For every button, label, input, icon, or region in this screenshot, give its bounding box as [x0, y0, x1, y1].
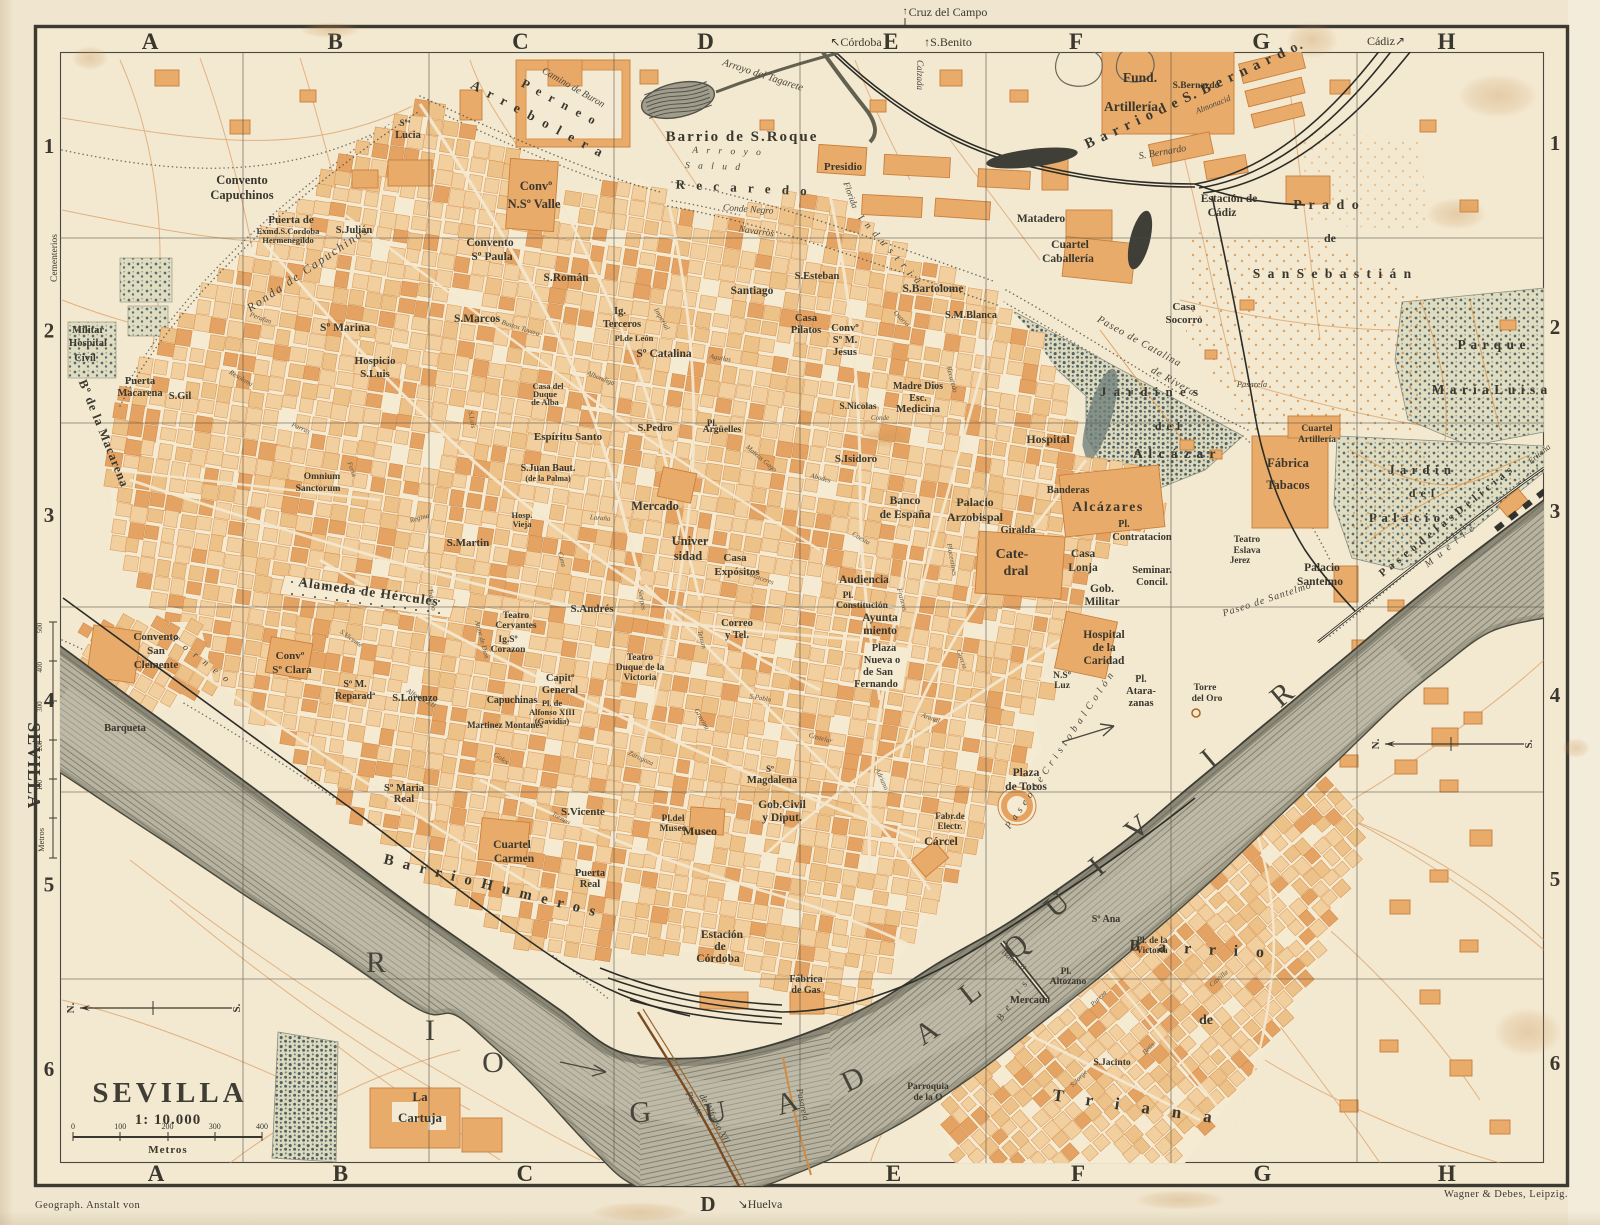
svg-text:de: de [1324, 231, 1337, 245]
svg-text:Sºª: Sºª [400, 118, 411, 128]
svg-text:N.Sº: N.Sº [1053, 671, 1071, 681]
svg-text:D: D [697, 29, 714, 54]
svg-text:General: General [542, 685, 578, 696]
svg-text:S.Esteban: S.Esteban [795, 271, 840, 282]
svg-text:S.Jacinto: S.Jacinto [1093, 1058, 1130, 1068]
svg-text:y Diput.: y Diput. [762, 812, 802, 824]
svg-text:S.Isidoro: S.Isidoro [835, 453, 878, 465]
svg-text:Capuchinos: Capuchinos [210, 188, 273, 202]
svg-text:2: 2 [1550, 315, 1561, 339]
svg-text:Macarena: Macarena [117, 388, 163, 399]
svg-text:Giralda: Giralda [1000, 525, 1036, 536]
svg-text:de: de [714, 941, 726, 953]
svg-text:Sanctorum: Sanctorum [296, 484, 341, 494]
svg-text:N.: N. [1370, 738, 1382, 749]
svg-text:S.Vicente: S.Vicente [561, 806, 605, 818]
svg-text:de la: de la [1092, 642, 1116, 654]
svg-text:Sº Catalina: Sº Catalina [636, 348, 691, 360]
svg-text:↑: ↑ [903, 6, 908, 17]
svg-text:Arzobispal: Arzobispal [947, 510, 1004, 524]
svg-text:Vieja: Vieja [512, 519, 532, 529]
svg-text:Banco: Banco [890, 495, 921, 507]
svg-text:Metros: Metros [36, 828, 46, 852]
svg-text:S.Pedro: S.Pedro [637, 423, 672, 434]
svg-text:S.Marcos: S.Marcos [454, 313, 501, 325]
svg-text:S.M.Blanca: S.M.Blanca [945, 310, 998, 321]
svg-text:Calzada: Calzada [915, 60, 925, 91]
svg-text:5: 5 [44, 872, 55, 896]
svg-text:S.Román: S.Román [543, 272, 589, 284]
svg-text:200: 200 [36, 740, 44, 751]
svg-text:400: 400 [256, 1122, 268, 1131]
svg-text:d e l: d e l [1155, 419, 1181, 433]
svg-text:S.Andrés: S.Andrés [570, 603, 614, 615]
svg-text:S.Nicolas: S.Nicolas [839, 402, 877, 412]
svg-text:Artillería: Artillería [1298, 435, 1336, 445]
svg-text:Casa: Casa [723, 552, 747, 564]
svg-text:E: E [883, 29, 898, 54]
svg-text:Cuartel: Cuartel [493, 839, 531, 851]
svg-text:Capitª: Capitª [546, 673, 575, 684]
svg-text:dral: dral [1004, 564, 1029, 579]
svg-text:Pasarela: Pasarela [1236, 379, 1267, 389]
svg-text:de: de [1199, 1013, 1213, 1028]
svg-text:Seminar.: Seminar. [1132, 565, 1172, 576]
svg-text:Medicina: Medicina [896, 403, 940, 415]
svg-text:Pl.: Pl. [1118, 519, 1130, 530]
svg-text:Fund.: Fund. [1123, 70, 1157, 85]
svg-text:Casa: Casa [1172, 301, 1196, 313]
svg-text:Victoria: Victoria [624, 673, 657, 683]
svg-text:N.Sº Valle: N.Sº Valle [508, 197, 561, 211]
svg-text:300: 300 [36, 701, 44, 712]
svg-text:↑S.Benito: ↑S.Benito [924, 35, 972, 49]
svg-text:Univer: Univer [672, 534, 709, 548]
svg-text:2: 2 [44, 319, 55, 343]
svg-text:Plaza: Plaza [872, 643, 897, 654]
svg-text:1: 1 [1550, 131, 1561, 155]
svg-text:Fabr.de: Fabr.de [935, 811, 964, 821]
svg-text:Parroquia: Parroquia [907, 1082, 949, 1092]
svg-text:Matadero: Matadero [1017, 213, 1066, 225]
svg-text:Sº Paula: Sº Paula [471, 251, 512, 263]
svg-text:Teatro: Teatro [627, 653, 654, 663]
svg-text:F: F [1071, 1161, 1085, 1186]
svg-text:Hospital: Hospital [69, 338, 107, 349]
svg-text:Socorro: Socorro [1165, 314, 1203, 326]
svg-text:Real: Real [394, 794, 414, 805]
svg-text:de España: de España [880, 509, 931, 521]
svg-text:S.Martin: S.Martin [447, 537, 489, 549]
svg-text:Real: Real [580, 879, 600, 890]
svg-text:P a r q u e: P a r q u e [1458, 337, 1527, 352]
svg-text:S.: S. [1523, 739, 1535, 748]
svg-text:Sº M.: Sº M. [343, 679, 367, 690]
svg-text:Caballería: Caballería [1042, 253, 1094, 265]
svg-text:zanas: zanas [1128, 698, 1153, 709]
svg-text:Geograph. Anstalt von: Geograph. Anstalt von [35, 1200, 141, 1211]
svg-text:Cate-: Cate- [996, 547, 1029, 562]
svg-text:Pl.: Pl. [1061, 967, 1072, 977]
svg-text:Atara-: Atara- [1126, 686, 1156, 697]
svg-text:H: H [1438, 1161, 1456, 1186]
svg-text:Banderas: Banderas [1047, 485, 1090, 496]
svg-text:San: San [147, 645, 165, 657]
svg-text:P a l a c i o: P a l a c i o [1369, 510, 1441, 525]
svg-text:Fernando: Fernando [854, 679, 898, 690]
svg-text:S a l u d: S a l u d [685, 161, 743, 173]
svg-text:Cárcel: Cárcel [924, 834, 958, 848]
svg-text:Sº Maria: Sº Maria [384, 783, 425, 794]
svg-text:Reparadª: Reparadª [335, 691, 375, 702]
svg-text:Lonja: Lonja [1068, 562, 1098, 574]
svg-text:N.: N. [65, 1002, 77, 1013]
svg-text:A: A [142, 29, 159, 54]
svg-text:(de la Palma): (de la Palma) [525, 474, 571, 483]
svg-text:Puerta: Puerta [125, 376, 156, 387]
svg-text:500: 500 [36, 622, 44, 633]
svg-text:Presidio: Presidio [824, 161, 863, 173]
svg-text:Convº: Convº [276, 650, 305, 662]
svg-text:H: H [1437, 29, 1455, 54]
svg-text:O: O [482, 1046, 504, 1079]
svg-text:Madre Dios: Madre Dios [893, 381, 943, 392]
svg-text:Torre: Torre [1194, 683, 1217, 693]
svg-text:Altozano: Altozano [1050, 977, 1087, 987]
svg-text:Correo: Correo [721, 618, 753, 629]
svg-text:del Oro: del Oro [1192, 694, 1223, 704]
svg-text:R: R [366, 946, 386, 979]
svg-text:1: 1 [44, 134, 55, 158]
svg-text:Palacio: Palacio [956, 495, 993, 509]
svg-text:G: G [628, 1095, 652, 1129]
svg-text:Omnium: Omnium [304, 472, 341, 482]
svg-text:Hospital: Hospital [1026, 432, 1070, 446]
svg-text:Contratacion: Contratacion [1112, 532, 1172, 543]
svg-text:400: 400 [36, 662, 44, 673]
svg-text:Casa: Casa [795, 313, 818, 324]
svg-text:Militar: Militar [1084, 596, 1119, 608]
svg-text:Ig.Sº: Ig.Sº [498, 635, 517, 645]
svg-text:Hermenegildo: Hermenegildo [262, 235, 313, 245]
svg-text:0: 0 [71, 1122, 75, 1131]
svg-text:A: A [148, 1161, 165, 1186]
svg-text:F: F [1069, 29, 1083, 54]
svg-text:La: La [412, 1089, 428, 1104]
svg-text:Carmen: Carmen [494, 853, 535, 865]
svg-text:Palacio: Palacio [1304, 562, 1340, 574]
svg-text:de Gas: de Gas [791, 985, 820, 996]
svg-text:G: G [1253, 1161, 1271, 1186]
svg-text:Fábrica: Fábrica [1267, 456, 1309, 470]
svg-text:Argüelles: Argüelles [703, 425, 742, 435]
svg-text:Cádiz: Cádiz [1208, 207, 1237, 219]
svg-text:Luz: Luz [1054, 681, 1071, 691]
svg-text:Hospicio: Hospicio [355, 355, 396, 367]
svg-text:Sº: Sº [766, 764, 774, 774]
svg-text:Barrio de S.Roque: Barrio de S.Roque [666, 129, 819, 145]
svg-text:Teatro: Teatro [503, 611, 530, 621]
svg-text:Corazon: Corazon [491, 645, 527, 655]
svg-text:Cruz del Campo: Cruz del Campo [909, 5, 988, 19]
svg-text:Sº Marina: Sº Marina [320, 322, 370, 334]
svg-text:Córdoba: Córdoba [696, 953, 740, 965]
svg-text:S.Luis: S.Luis [360, 368, 390, 380]
svg-text:Santiago: Santiago [731, 285, 774, 297]
svg-text:↘Huelva: ↘Huelva [738, 1197, 783, 1211]
svg-text:S.: S. [231, 1003, 243, 1012]
svg-text:Pilatos: Pilatos [791, 325, 821, 336]
svg-text:Sº Clara: Sº Clara [272, 664, 312, 676]
svg-text:d e l: d e l [1409, 486, 1435, 500]
svg-text:Hospital: Hospital [1083, 629, 1125, 641]
svg-text:G: G [1252, 29, 1270, 54]
svg-text:Pl.de León: Pl.de León [615, 333, 654, 343]
svg-text:Pl.: Pl. [843, 591, 854, 601]
svg-text:6: 6 [1550, 1051, 1561, 1075]
svg-text:Puerta: Puerta [575, 868, 606, 879]
svg-text:miento: miento [863, 625, 897, 637]
svg-text:sidad: sidad [674, 549, 703, 563]
svg-text:E: E [886, 1161, 901, 1186]
svg-text:Cuartel: Cuartel [1051, 239, 1089, 251]
svg-text:de San: de San [863, 667, 893, 678]
svg-text:Nueva o: Nueva o [864, 655, 900, 666]
svg-text:B: B [333, 1161, 348, 1186]
svg-text:Barqueta: Barqueta [104, 723, 147, 734]
svg-text:Lucia: Lucia [395, 130, 421, 141]
svg-text:C: C [512, 29, 529, 54]
svg-text:Jesus: Jesus [833, 347, 857, 358]
svg-text:Tabacos: Tabacos [1266, 478, 1309, 492]
svg-text:S.Bartolome: S.Bartolome [902, 283, 963, 295]
svg-text:I: I [425, 1014, 435, 1047]
svg-text:Alcázares: Alcázares [1072, 500, 1144, 515]
svg-text:Constitución: Constitución [836, 601, 888, 611]
svg-text:Cervantes: Cervantes [495, 621, 536, 631]
svg-text:Conde: Conde [871, 414, 889, 422]
svg-text:Museo: Museo [683, 824, 717, 838]
svg-text:Convº: Convº [520, 179, 553, 193]
svg-text:5: 5 [1550, 867, 1561, 891]
svg-text:100: 100 [114, 1122, 126, 1131]
svg-text:Concil.: Concil. [1136, 577, 1168, 588]
svg-text:Gob.Civil: Gob.Civil [758, 799, 806, 811]
svg-text:de Alba: de Alba [531, 397, 559, 407]
svg-text:Audiencia: Audiencia [839, 574, 889, 586]
svg-text:4: 4 [1550, 683, 1561, 707]
svg-text:Cementerios: Cementerios [50, 234, 60, 282]
svg-text:Wagner & Debes, Leipzig.: Wagner & Debes, Leipzig. [1444, 1189, 1568, 1200]
svg-text:300: 300 [209, 1122, 221, 1131]
svg-text:Cádiz↗: Cádiz↗ [1367, 34, 1405, 48]
svg-text:A l c á z a r: A l c á z a r [1133, 446, 1217, 461]
svg-text:100: 100 [36, 779, 44, 790]
svg-text:Pl.del: Pl.del [662, 814, 685, 824]
svg-text:SEVILLA: SEVILLA [92, 1077, 247, 1109]
svg-text:Terceros: Terceros [603, 319, 641, 330]
svg-text:Capuchinas: Capuchinas [487, 695, 538, 706]
svg-text:SEVILLA: SEVILLA [24, 722, 44, 809]
svg-text:Estación: Estación [701, 929, 744, 941]
svg-text:3: 3 [1550, 499, 1561, 523]
svg-text:Mercado: Mercado [631, 499, 679, 513]
svg-text:P r a d o: P r a d o [1293, 198, 1361, 213]
svg-text:C: C [516, 1161, 533, 1186]
svg-text:6: 6 [44, 1057, 55, 1081]
svg-text:Metros: Metros [148, 1144, 187, 1156]
svg-text:Puerta de: Puerta de [268, 214, 314, 226]
svg-text:S.Juan Baut.: S.Juan Baut. [521, 463, 576, 474]
svg-text:3: 3 [44, 503, 55, 527]
svg-text:Sº Ana: Sº Ana [1092, 914, 1121, 925]
svg-text:Espíritu Santo: Espíritu Santo [534, 431, 603, 443]
svg-text:Fábrica: Fábrica [789, 974, 822, 985]
svg-text:Convento: Convento [466, 237, 514, 249]
svg-text:Ayunta: Ayunta [862, 612, 898, 624]
svg-text:Militar: Militar [72, 325, 104, 336]
svg-text:Estación de: Estación de [1201, 193, 1258, 205]
svg-text:Cuartel: Cuartel [1301, 424, 1332, 434]
svg-text:Cartuja: Cartuja [398, 1110, 443, 1125]
svg-text:Civil: Civil [74, 353, 96, 364]
svg-text:Electr.: Electr. [938, 821, 963, 831]
svg-text:↖Córdoba: ↖Córdoba [830, 35, 882, 49]
svg-text:S.Gil: S.Gil [169, 391, 192, 402]
svg-text:M a r í a L u i s a: M a r í a L u i s a [1432, 382, 1549, 397]
svg-text:Magdalena: Magdalena [747, 775, 798, 786]
svg-text:y Tel.: y Tel. [725, 630, 749, 641]
svg-text:Gob.: Gob. [1090, 583, 1114, 595]
svg-text:Convento: Convento [216, 173, 267, 187]
svg-text:Jerez: Jerez [1230, 555, 1250, 565]
svg-text:de la O: de la O [913, 1093, 942, 1103]
svg-text:Casa: Casa [1071, 548, 1096, 560]
svg-text:Duque de la: Duque de la [616, 663, 665, 673]
svg-text:Ig.: Ig. [614, 306, 626, 317]
svg-text:S a n S e b a s t i á n: S a n S e b a s t i á n [1253, 266, 1413, 281]
svg-text:Clemente: Clemente [134, 659, 179, 671]
svg-text:Pl.: Pl. [1135, 674, 1147, 685]
svg-text:Martinez Montanés: Martinez Montanés [467, 720, 543, 730]
svg-text:Convº: Convº [831, 323, 859, 334]
svg-text:Teatro: Teatro [1234, 535, 1261, 545]
svg-text:J a r d i n: J a r d i n [1388, 462, 1452, 477]
svg-text:Sº M.: Sº M. [833, 335, 858, 346]
svg-text:200: 200 [162, 1122, 174, 1131]
svg-text:Caridad: Caridad [1084, 655, 1126, 667]
